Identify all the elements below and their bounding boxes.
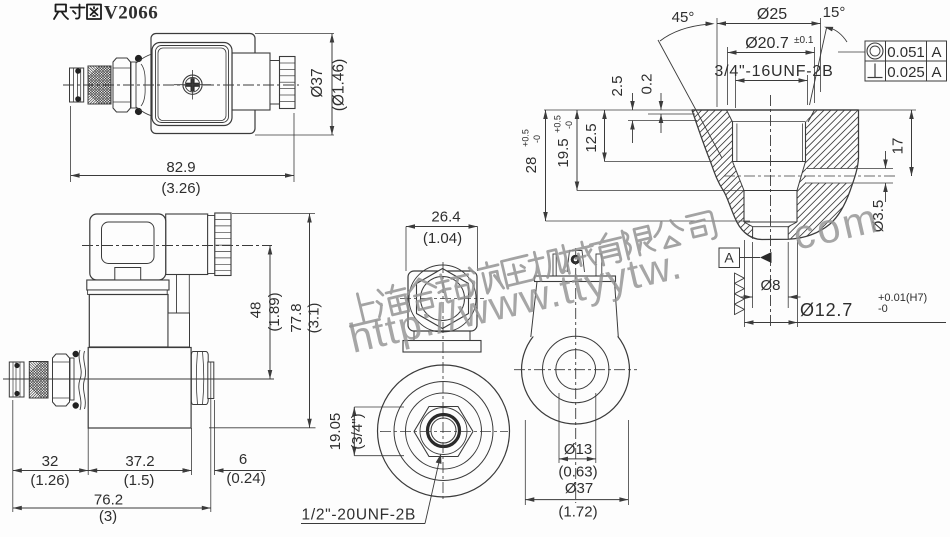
svg-text:37.2: 37.2 — [125, 453, 154, 470]
svg-text:28: 28 — [523, 157, 540, 174]
svg-text:A: A — [724, 250, 734, 266]
svg-text:76.2: 76.2 — [94, 492, 123, 509]
svg-text:-0: -0 — [532, 135, 542, 143]
svg-text:1/2"-20UNF-2B: 1/2"-20UNF-2B — [302, 507, 417, 524]
svg-text:+0.5: +0.5 — [553, 115, 563, 133]
svg-text:A: A — [931, 64, 941, 81]
svg-text:(3.1): (3.1) — [306, 303, 323, 334]
svg-text:Ø20.7: Ø20.7 — [745, 35, 789, 52]
svg-text:(1.89): (1.89) — [266, 292, 283, 331]
svg-text:±0.1: ±0.1 — [794, 35, 814, 46]
svg-text:19.05: 19.05 — [327, 413, 344, 451]
svg-text:45°: 45° — [672, 9, 695, 26]
svg-text:12.5: 12.5 — [583, 123, 600, 152]
svg-text:(1.26): (1.26) — [30, 472, 69, 489]
svg-text:17: 17 — [890, 138, 907, 155]
svg-text:(Ø1.46): (Ø1.46) — [331, 59, 348, 112]
svg-text:(0.63): (0.63) — [558, 464, 597, 481]
svg-text:-0: -0 — [564, 121, 574, 129]
svg-text:Ø13: Ø13 — [564, 441, 592, 458]
svg-text:A: A — [931, 44, 941, 61]
svg-text:(1.04): (1.04) — [423, 230, 462, 247]
svg-text:77.8: 77.8 — [288, 303, 305, 332]
svg-text:Ø8: Ø8 — [760, 277, 780, 294]
svg-text:82.9: 82.9 — [166, 159, 195, 176]
svg-text:Ø25: Ø25 — [757, 6, 787, 23]
svg-text:26.4: 26.4 — [431, 209, 460, 226]
svg-text:+0.5: +0.5 — [521, 129, 531, 147]
svg-text:15°: 15° — [823, 4, 846, 21]
svg-text:48: 48 — [248, 302, 265, 319]
svg-text:Ø37: Ø37 — [309, 68, 326, 97]
svg-text:0.051: 0.051 — [887, 44, 925, 61]
svg-text:0.025: 0.025 — [887, 64, 925, 81]
svg-text:-0: -0 — [878, 303, 888, 315]
svg-text:(3.26): (3.26) — [161, 180, 200, 197]
svg-text:(3/4"): (3/4") — [349, 413, 366, 449]
svg-text:(3): (3) — [99, 508, 117, 525]
svg-text:2.5: 2.5 — [609, 76, 626, 97]
svg-text:32: 32 — [42, 453, 59, 470]
svg-text:(0.24): (0.24) — [226, 470, 265, 487]
svg-text:Ø12.7: Ø12.7 — [800, 300, 853, 320]
svg-text:V2066: V2066 — [104, 3, 158, 24]
svg-text:6: 6 — [239, 451, 247, 468]
svg-text:(1.5): (1.5) — [124, 472, 155, 489]
svg-text:0.2: 0.2 — [639, 74, 656, 95]
svg-text:19.5: 19.5 — [555, 138, 572, 167]
svg-text:(1.72): (1.72) — [558, 504, 597, 521]
svg-text:Ø37: Ø37 — [565, 480, 593, 497]
